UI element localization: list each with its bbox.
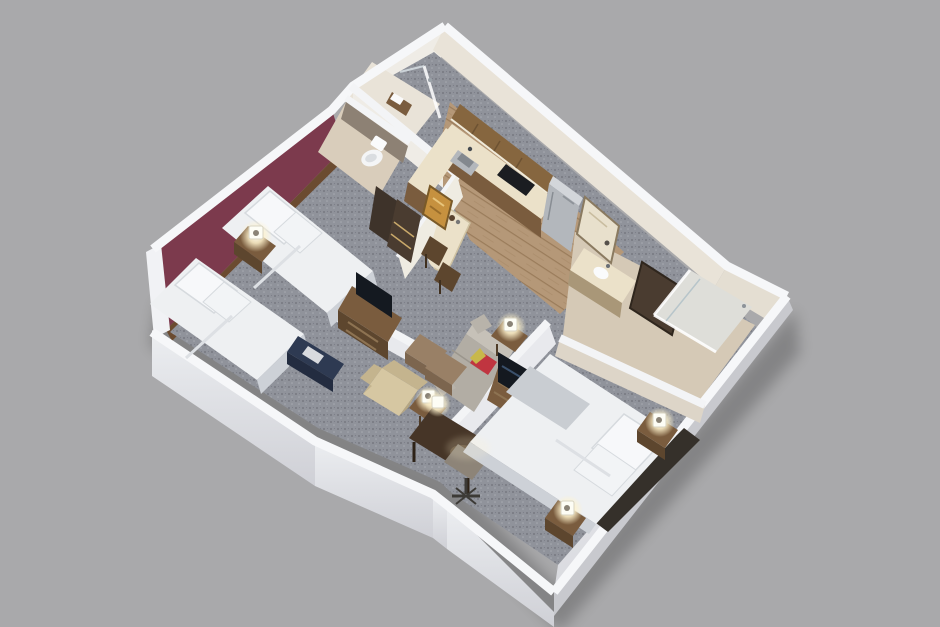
- desk-lamp: [425, 391, 451, 417]
- light-spot-desk: [446, 436, 490, 460]
- table-lamp-north: [496, 312, 526, 342]
- table-lamp-sw: [553, 495, 583, 525]
- door-handle: [605, 241, 610, 246]
- table-lamp-bedroom1: [240, 220, 272, 252]
- floor-plan-stage: [0, 0, 940, 627]
- table-lamp-ne: [645, 407, 675, 437]
- floor-plan-render: [0, 0, 940, 627]
